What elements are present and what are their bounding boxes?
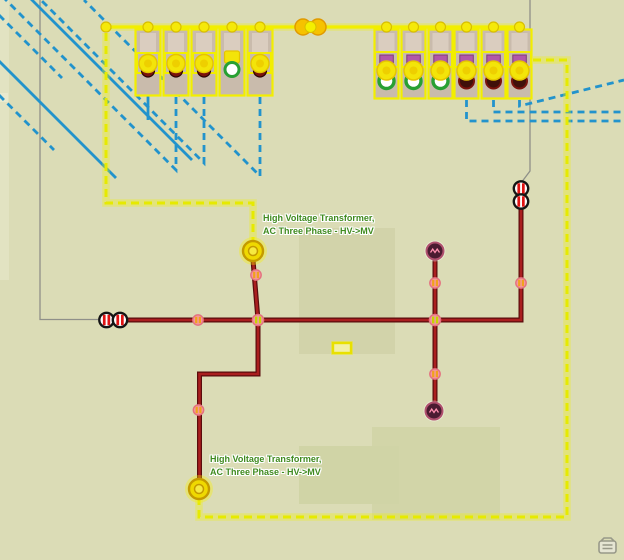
map-notes-icon[interactable] xyxy=(599,538,616,553)
transformer-label-1: High Voltage Transformer, AC Three Phase… xyxy=(263,212,374,238)
bus-coupler-icon[interactable] xyxy=(295,19,326,35)
transformer-label-2-line1: High Voltage Transformer, xyxy=(210,453,321,466)
transformer-label-2: High Voltage Transformer, AC Three Phase… xyxy=(210,453,321,479)
map-viewport[interactable]: High Voltage Transformer, AC Three Phase… xyxy=(0,0,624,560)
mv-line[interactable] xyxy=(200,260,259,479)
transformer-label-2-line2: AC Three Phase - HV->MV xyxy=(210,466,321,479)
transformer-label-1-line2: AC Three Phase - HV->MV xyxy=(263,225,374,238)
left-substation[interactable] xyxy=(136,30,273,96)
cable-line-solid[interactable] xyxy=(0,60,116,178)
station-rectangle-icon[interactable] xyxy=(331,341,353,355)
right-substation[interactable] xyxy=(375,30,532,99)
transformer-label-1-line1: High Voltage Transformer, xyxy=(263,212,374,225)
